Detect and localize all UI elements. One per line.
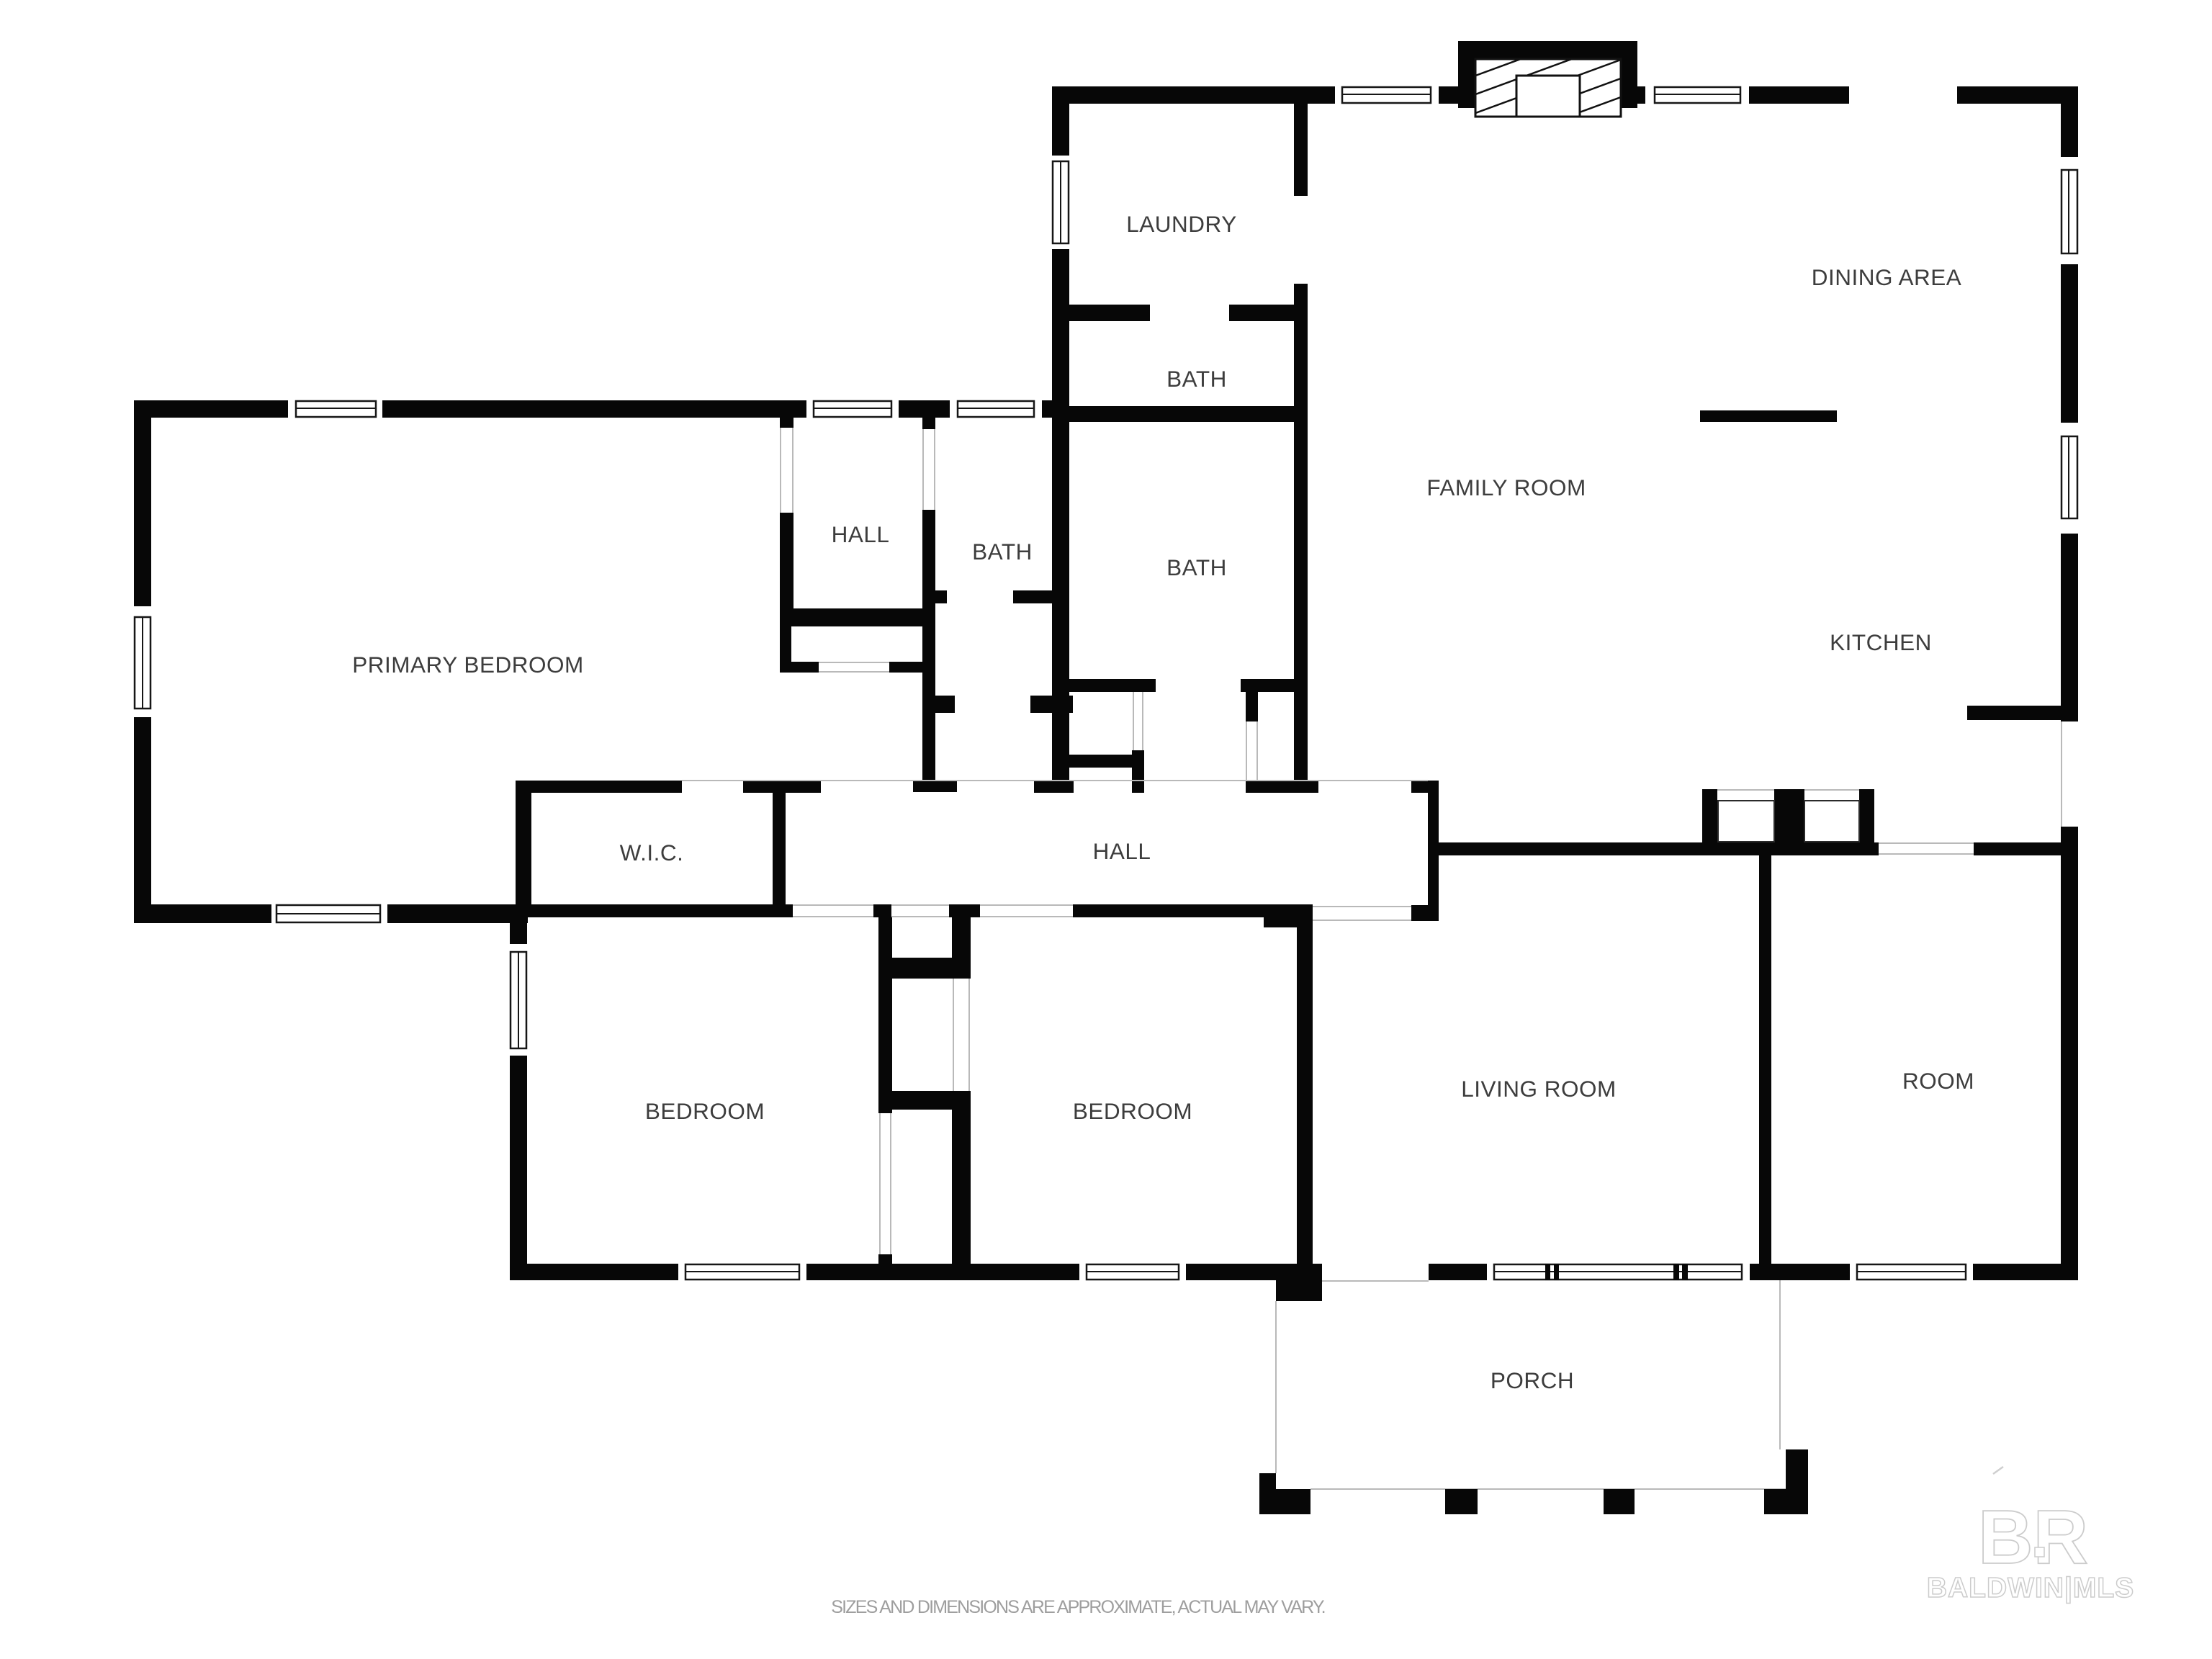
svg-text:BR: BR: [1978, 1495, 2088, 1580]
svg-text:W.I.C.: W.I.C.: [620, 840, 684, 866]
svg-text:PRIMARY BEDROOM: PRIMARY BEDROOM: [352, 652, 583, 678]
svg-text:ROOM: ROOM: [1902, 1068, 1974, 1094]
svg-text:FAMILY ROOM: FAMILY ROOM: [1426, 475, 1586, 500]
svg-text:DINING AREA: DINING AREA: [1812, 264, 1962, 290]
svg-text:BATH: BATH: [1166, 366, 1227, 392]
svg-text:BALDWIN|MLS: BALDWIN|MLS: [1927, 1573, 2134, 1604]
svg-text:HALL: HALL: [1093, 838, 1151, 864]
svg-text:LIVING ROOM: LIVING ROOM: [1461, 1076, 1617, 1102]
svg-text:LAUNDRY: LAUNDRY: [1126, 211, 1236, 237]
svg-text:BEDROOM: BEDROOM: [645, 1098, 765, 1124]
svg-text:BATH: BATH: [972, 539, 1033, 565]
svg-text:KITCHEN: KITCHEN: [1830, 629, 1932, 655]
svg-text:BATH: BATH: [1166, 554, 1227, 580]
svg-text:SIZES AND DIMENSIONS ARE APPRO: SIZES AND DIMENSIONS ARE APPROXIMATE, AC…: [831, 1597, 1325, 1617]
svg-text:HALL: HALL: [832, 521, 890, 547]
svg-text:PORCH: PORCH: [1491, 1367, 1574, 1393]
svg-text:BEDROOM: BEDROOM: [1073, 1098, 1192, 1124]
